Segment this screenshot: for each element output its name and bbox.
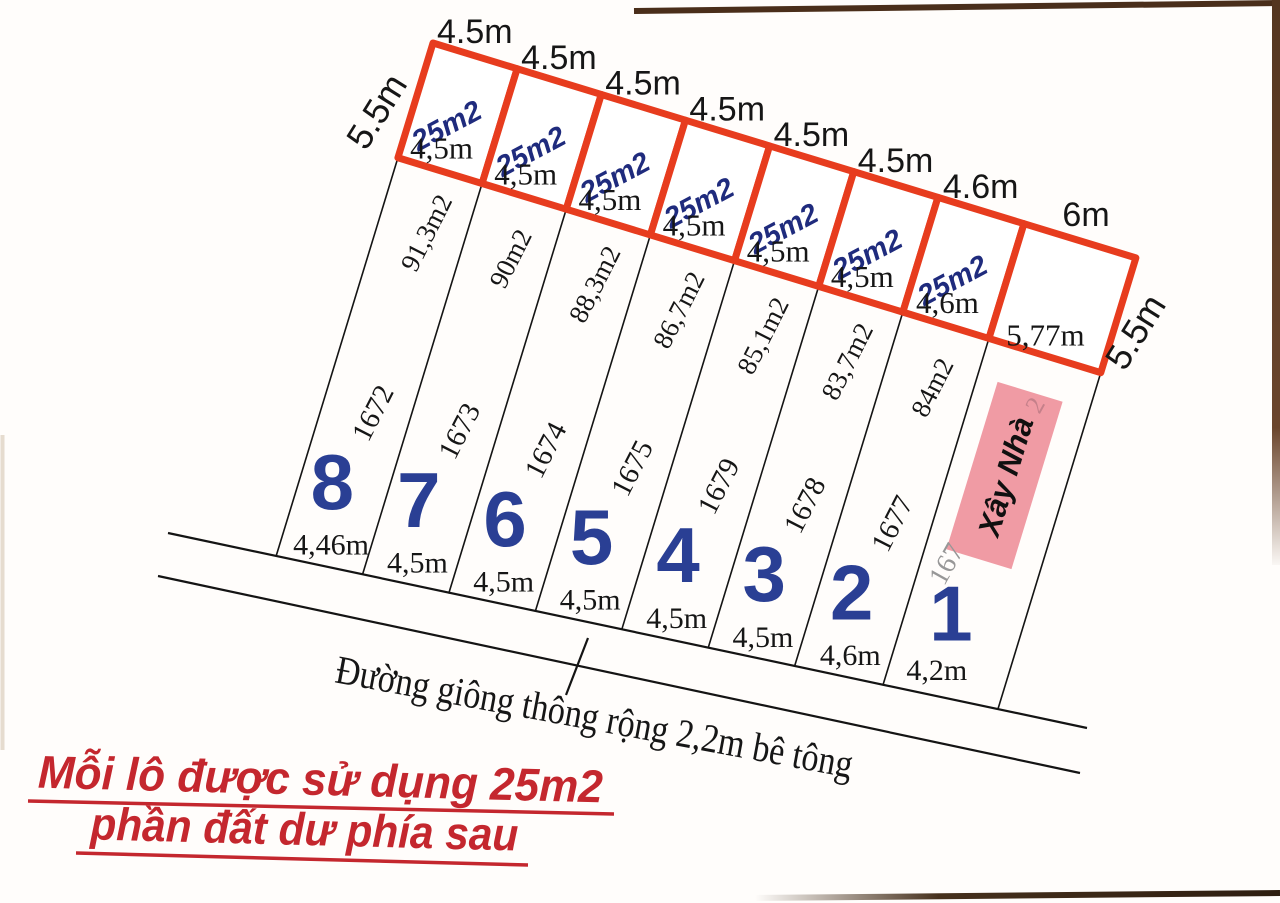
photo-edge-top — [634, 3, 1280, 11]
frontage-label: 4,6m — [820, 639, 881, 672]
frontage-label: 4,46m — [293, 529, 369, 562]
square-top-dimension: 4.6m — [943, 168, 1019, 206]
frontage-label: 4,5m — [387, 547, 448, 580]
square-top-dimension: 4.5m — [521, 39, 597, 77]
square-bottom-dimension: 4,5m — [831, 259, 894, 294]
plot-number: 6 — [483, 475, 526, 563]
square-top-dimension: 4.5m — [774, 116, 850, 154]
plot-number: 8 — [311, 438, 354, 526]
area-label: 88,3m2 — [563, 241, 627, 327]
plot-number: 7 — [397, 456, 440, 544]
parcel-id-label: 1673 — [432, 398, 487, 464]
area-label: 86,7m2 — [647, 267, 711, 353]
square-bottom-dimension: 5,77m — [1006, 317, 1084, 352]
area-label: 83,7m2 — [815, 318, 879, 404]
plot-number: 4 — [656, 511, 699, 599]
plot-number: 3 — [743, 530, 786, 618]
photo-edge-bottom — [755, 893, 1280, 898]
diagram-canvas: 4.5m 25m2 4,5m 91,3m2 1672 8 4,46m 4.5m … — [0, 0, 1280, 903]
square-bottom-dimension: 4,6m — [916, 285, 979, 320]
frontage-label: 4,5m — [732, 621, 793, 654]
area-label: 84m2 — [905, 353, 960, 421]
square-bottom-dimension: 4,5m — [663, 208, 726, 243]
square-bottom-dimension: 4,5m — [410, 131, 473, 166]
area-label: 91,3m2 — [394, 190, 458, 276]
note-group: Mỗi lô được sử dụng 25m2 phần đất dư phí… — [28, 746, 614, 865]
frontage-label: 4,5m — [560, 584, 621, 617]
plot-number: 5 — [570, 493, 613, 581]
square-top-dimension: 4.5m — [858, 142, 934, 180]
parcel-id-label: 1677 — [865, 491, 920, 557]
square-top-dimension: 6m — [1062, 196, 1109, 234]
area-label: 90m2 — [483, 224, 538, 292]
parcel-id-label: 1678 — [778, 472, 833, 538]
plot-number: 2 — [830, 549, 873, 637]
parcel-id-label: 1674 — [519, 417, 574, 484]
square-bottom-dimension: 4,5m — [578, 182, 641, 217]
square-top-dimension: 4.5m — [689, 90, 765, 128]
note-line-2: phần đất dư phía sau — [88, 797, 519, 860]
frontage-label: 4,2m — [906, 654, 967, 687]
parcel-id-label: 1672 — [346, 380, 401, 446]
square-bottom-dimension: 4,5m — [747, 233, 810, 268]
frontage-label: 4,5m — [473, 566, 534, 599]
area-label: 85,1m2 — [731, 292, 795, 378]
parcel-id-label: 1679 — [692, 453, 747, 519]
square-bottom-dimension: 4,5m — [494, 156, 557, 191]
square-top-dimension: 4.5m — [437, 13, 513, 51]
frontage-label: 4,5m — [646, 602, 707, 635]
land-plot-diagram: 4.5m 25m2 4,5m 91,3m2 1672 8 4,46m 4.5m … — [0, 0, 1280, 903]
parcel-id-label: 1675 — [605, 435, 660, 501]
square-top-dimension: 4.5m — [605, 65, 681, 103]
